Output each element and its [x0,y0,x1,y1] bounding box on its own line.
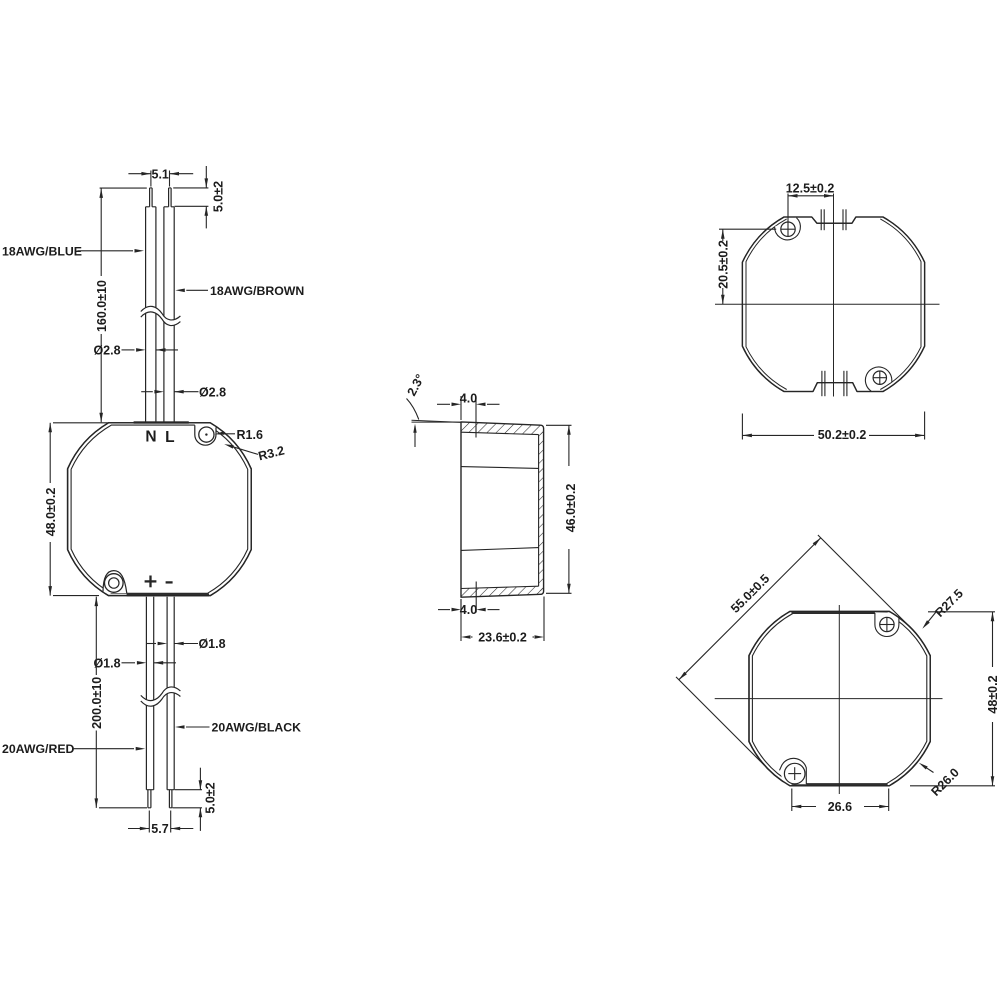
svg-text:5.0±2: 5.0±2 [211,181,225,212]
svg-text:Ø1.8: Ø1.8 [93,656,120,670]
svg-text:R1.6: R1.6 [237,428,263,442]
svg-text:48±0.2: 48±0.2 [986,675,1000,713]
svg-text:Ø2.8: Ø2.8 [93,344,120,358]
svg-text:20AWG/RED: 20AWG/RED [2,742,75,756]
svg-text:L: L [165,429,174,446]
svg-text:5.0±2: 5.0±2 [204,782,218,813]
svg-text:160.0±10: 160.0±10 [95,280,109,332]
svg-text:18AWG/BROWN: 18AWG/BROWN [210,284,304,298]
svg-text:5.7: 5.7 [151,822,168,836]
svg-text:200.0±10: 200.0±10 [90,677,104,729]
svg-text:46.0±0.2: 46.0±0.2 [564,484,578,533]
svg-text:4.0: 4.0 [460,603,477,617]
svg-text:50.2±0.2: 50.2±0.2 [818,428,867,442]
svg-text:12.5±0.2: 12.5±0.2 [786,181,835,195]
svg-text:48.0±0.2: 48.0±0.2 [44,488,58,537]
svg-text:26.6: 26.6 [828,800,852,814]
svg-text:5.1: 5.1 [152,167,169,181]
svg-text:23.6±0.2: 23.6±0.2 [478,631,527,645]
svg-text:18AWG/BLUE: 18AWG/BLUE [2,244,82,258]
svg-text:Ø1.8: Ø1.8 [198,637,225,651]
svg-text:Ø2.8: Ø2.8 [199,385,226,399]
svg-text:N: N [145,429,156,446]
svg-text:4.0: 4.0 [460,392,477,406]
svg-text:20AWG/BLACK: 20AWG/BLACK [212,721,302,735]
svg-text:20.5±0.2: 20.5±0.2 [716,240,730,289]
